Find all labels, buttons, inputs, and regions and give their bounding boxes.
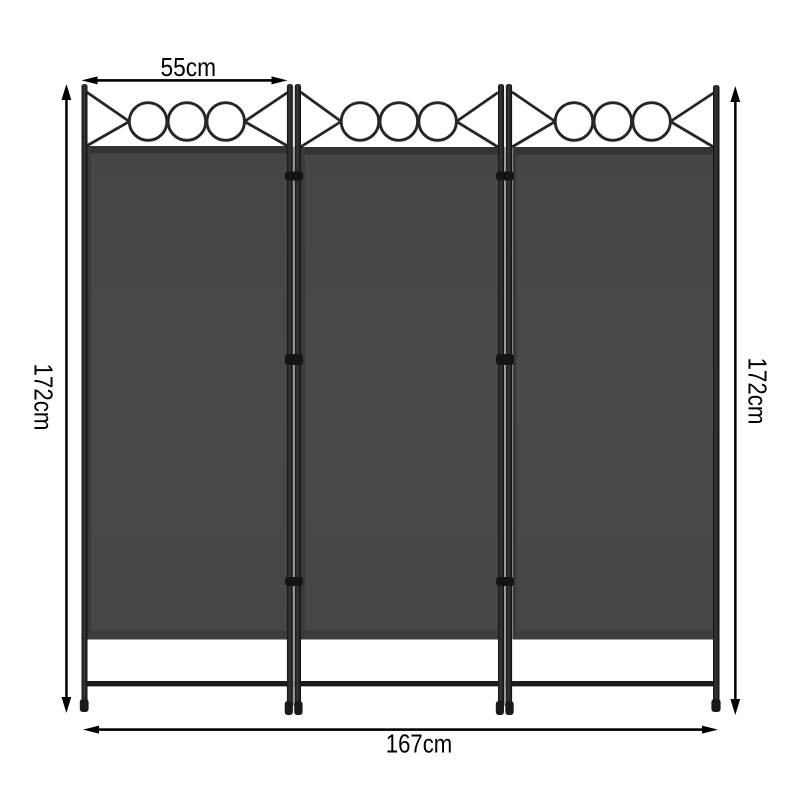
svg-text:167cm: 167cm <box>386 729 453 759</box>
svg-text:172cm: 172cm <box>29 364 59 431</box>
svg-text:55cm: 55cm <box>161 52 217 82</box>
svg-text:172cm: 172cm <box>743 358 773 425</box>
